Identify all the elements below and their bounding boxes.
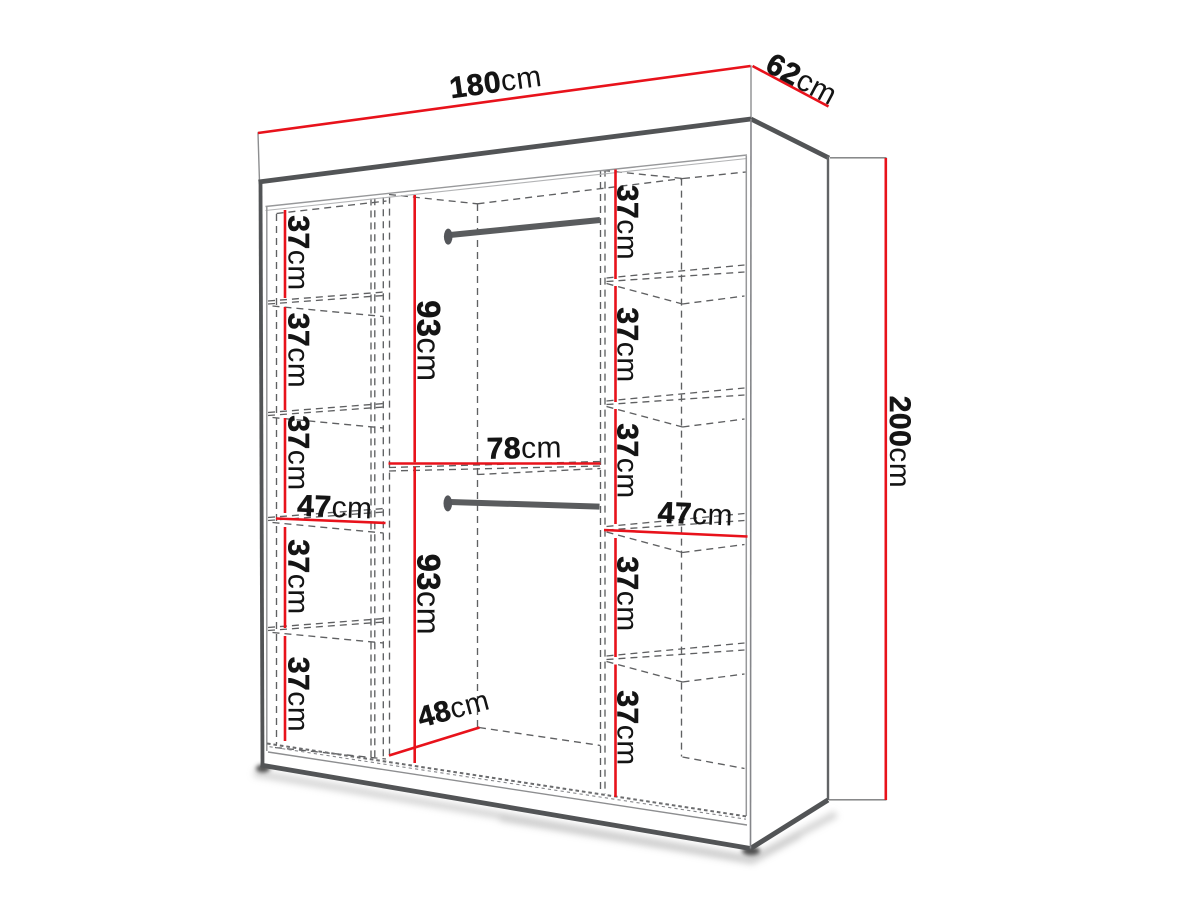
- svg-text:37cm: 37cm: [282, 313, 315, 388]
- svg-text:37cm: 37cm: [611, 690, 644, 765]
- svg-text:47cm: 47cm: [297, 490, 374, 526]
- svg-text:200cm: 200cm: [883, 396, 916, 489]
- svg-text:47cm: 47cm: [657, 497, 734, 533]
- svg-text:37cm: 37cm: [282, 215, 315, 290]
- svg-text:37cm: 37cm: [611, 307, 644, 382]
- svg-text:37cm: 37cm: [611, 185, 644, 260]
- svg-text:93cm: 93cm: [411, 554, 447, 635]
- svg-text:37cm: 37cm: [282, 415, 315, 490]
- svg-text:93cm: 93cm: [411, 300, 447, 381]
- svg-text:37cm: 37cm: [611, 423, 644, 498]
- svg-text:37cm: 37cm: [282, 657, 315, 732]
- svg-text:78cm: 78cm: [486, 431, 562, 465]
- svg-text:37cm: 37cm: [611, 556, 644, 631]
- svg-text:37cm: 37cm: [282, 539, 315, 614]
